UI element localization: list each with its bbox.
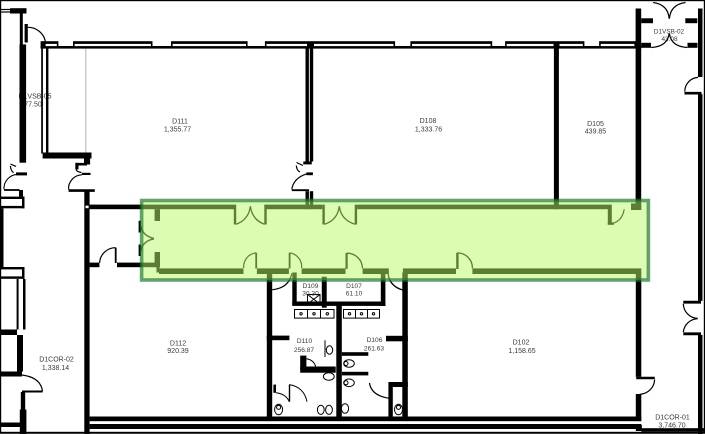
svg-text:261.63: 261.63 [364, 345, 385, 352]
svg-text:256.87: 256.87 [294, 347, 315, 354]
svg-text:D110: D110 [297, 338, 313, 345]
svg-text:D112: D112 [170, 341, 186, 348]
svg-text:D102: D102 [513, 340, 530, 347]
svg-text:1,355.77: 1,355.77 [164, 127, 191, 134]
svg-text:920.39: 920.39 [167, 348, 189, 355]
svg-text:D111: D111 [172, 119, 188, 126]
svg-text:D105: D105 [587, 121, 604, 128]
svg-text:30.30: 30.30 [302, 290, 319, 297]
svg-text:77.50: 77.50 [24, 102, 42, 109]
svg-text:D1COR-01: D1COR-01 [655, 415, 690, 422]
svg-text:D109: D109 [303, 283, 319, 290]
svg-text:D108: D108 [420, 118, 437, 125]
svg-text:1,338.14: 1,338.14 [42, 365, 69, 372]
svg-text:1,333.76: 1,333.76 [415, 127, 442, 134]
svg-text:1,158.65: 1,158.65 [508, 348, 535, 355]
svg-text:D107: D107 [346, 283, 362, 290]
svg-text:439.85: 439.85 [585, 129, 607, 136]
svg-text:D1COR-02: D1COR-02 [39, 357, 74, 364]
svg-text:D106: D106 [367, 337, 383, 344]
svg-text:3,746.70: 3,746.70 [658, 423, 685, 430]
svg-text:61.10: 61.10 [346, 290, 363, 297]
